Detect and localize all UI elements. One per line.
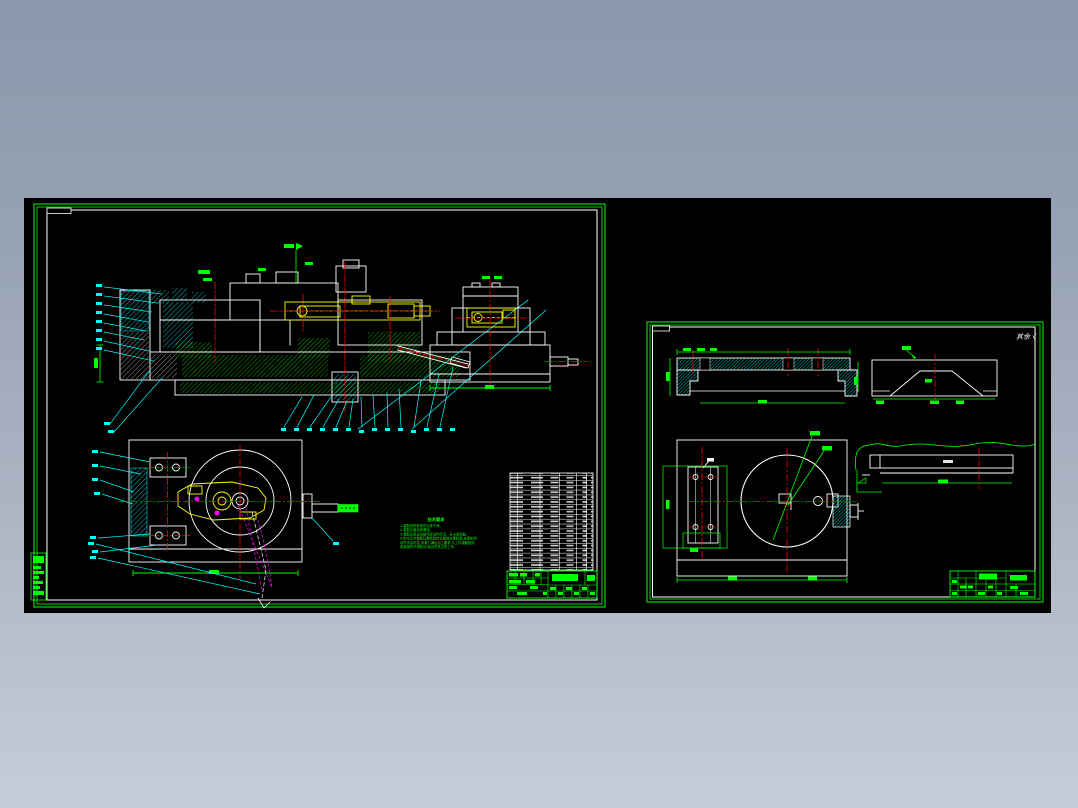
part-outlines	[862, 455, 1013, 475]
left-sheet: 技术要求 1.装配前所有零件清洗干净。 2.各配合面涂润滑油。 3.装配后各运动…	[31, 204, 605, 608]
hatch-region	[833, 496, 850, 527]
dimension-label	[943, 460, 953, 463]
notes-block: 技术要求 1.装配前所有零件清洗干净。 2.各配合面涂润滑油。 3.装配后各运动…	[400, 516, 477, 549]
title-block-text	[509, 573, 595, 595]
centerlines	[118, 445, 322, 580]
hatch-region	[192, 292, 206, 303]
surface-finish-note: 其余 √	[1016, 333, 1037, 341]
hatch-region	[180, 382, 440, 393]
part-callout-leaders	[773, 431, 832, 540]
cad-preview-page: 技术要求 1.装配前所有零件清洗干净。 2.各配合面涂润滑油。 3.装配后各运动…	[0, 0, 1078, 808]
hatch-region	[151, 354, 177, 378]
hatch-region	[298, 338, 330, 358]
drawing-title	[552, 574, 578, 581]
hatch-region	[182, 355, 328, 377]
main-section-view	[94, 243, 546, 433]
v-block-view	[872, 346, 997, 404]
title-block-left	[507, 571, 597, 598]
hatch-region	[176, 342, 212, 358]
break-line	[857, 442, 1036, 452]
hatch-region	[121, 332, 149, 379]
drawing-title	[979, 574, 997, 580]
handle-knob	[338, 505, 358, 513]
drawing-number	[1010, 575, 1027, 581]
base-section-view	[666, 348, 858, 404]
base-plan-view	[663, 431, 864, 583]
plan-view	[88, 440, 358, 608]
right-sheet: 其余 √	[647, 322, 1043, 602]
bar-detail-view	[855, 442, 1036, 492]
hatch-region	[368, 332, 420, 362]
note-line: 各紧固件不得松动,保证夹具正常工作。	[400, 544, 457, 549]
notes-title: 技术要求	[428, 516, 446, 523]
dimension-marks	[663, 466, 847, 583]
part-outlines	[129, 440, 338, 562]
bom-table	[510, 473, 593, 570]
signature-strip	[31, 553, 46, 600]
flag-label	[707, 458, 714, 462]
frame-corner-tab	[47, 208, 71, 214]
title-block-right	[950, 571, 1035, 597]
hatch-region	[172, 288, 187, 300]
hatch-region	[131, 468, 147, 536]
frame-corner-tab	[653, 326, 670, 331]
centerlines	[455, 278, 588, 392]
clamp-mechanism	[467, 308, 515, 327]
dimension-marks	[133, 570, 298, 576]
hatch-region	[163, 302, 193, 348]
drawing-canvas: 技术要求 1.装配前所有零件清洗干净。 2.各配合面涂润滑油。 3.装配后各运动…	[24, 198, 1051, 613]
cad-drawing: 技术要求 1.装配前所有零件清洗干净。 2.各配合面涂润滑油。 3.装配后各运动…	[24, 198, 1051, 613]
lever-phantom-lines	[195, 497, 273, 609]
